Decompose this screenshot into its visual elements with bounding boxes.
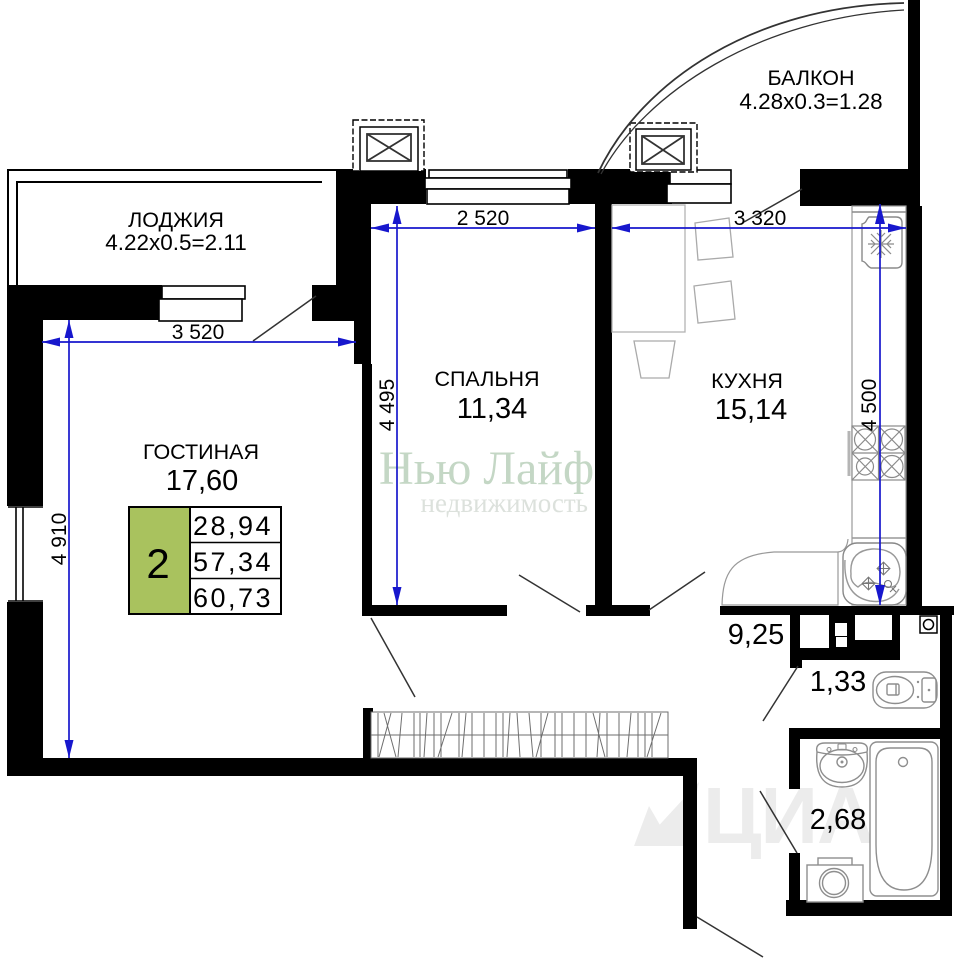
svg-text:57,34: 57,34 (193, 547, 273, 577)
svg-text:4 495: 4 495 (376, 379, 399, 432)
svg-text:15,14: 15,14 (715, 394, 788, 426)
svg-text:2,68: 2,68 (810, 804, 866, 836)
svg-text:4.28x0.3=1.28: 4.28x0.3=1.28 (739, 89, 882, 114)
svg-text:9,25: 9,25 (728, 619, 784, 651)
svg-text:2: 2 (146, 540, 169, 587)
svg-text:3 320: 3 320 (734, 207, 787, 230)
svg-text:ГОСТИНАЯ: ГОСТИНАЯ (143, 440, 259, 464)
svg-text:4.22x0.5=2.11: 4.22x0.5=2.11 (105, 230, 247, 255)
svg-text:4 910: 4 910 (48, 513, 71, 566)
svg-text:17,60: 17,60 (166, 465, 239, 497)
svg-text:СПАЛЬНЯ: СПАЛЬНЯ (434, 367, 539, 391)
svg-text:11,34: 11,34 (457, 393, 527, 425)
svg-text:28,94: 28,94 (193, 511, 273, 541)
svg-text:3 520: 3 520 (172, 321, 225, 344)
svg-text:ЛОДЖИЯ: ЛОДЖИЯ (128, 208, 224, 232)
svg-text:1,33: 1,33 (810, 666, 866, 698)
svg-text:4 500: 4 500 (858, 379, 881, 432)
svg-text:КУХНЯ: КУХНЯ (711, 369, 783, 393)
svg-text:60,73: 60,73 (193, 583, 273, 613)
svg-text:БАЛКОН: БАЛКОН (767, 66, 854, 90)
svg-text:недвижимость: недвижимость (421, 488, 588, 518)
svg-text:2 520: 2 520 (457, 207, 510, 230)
